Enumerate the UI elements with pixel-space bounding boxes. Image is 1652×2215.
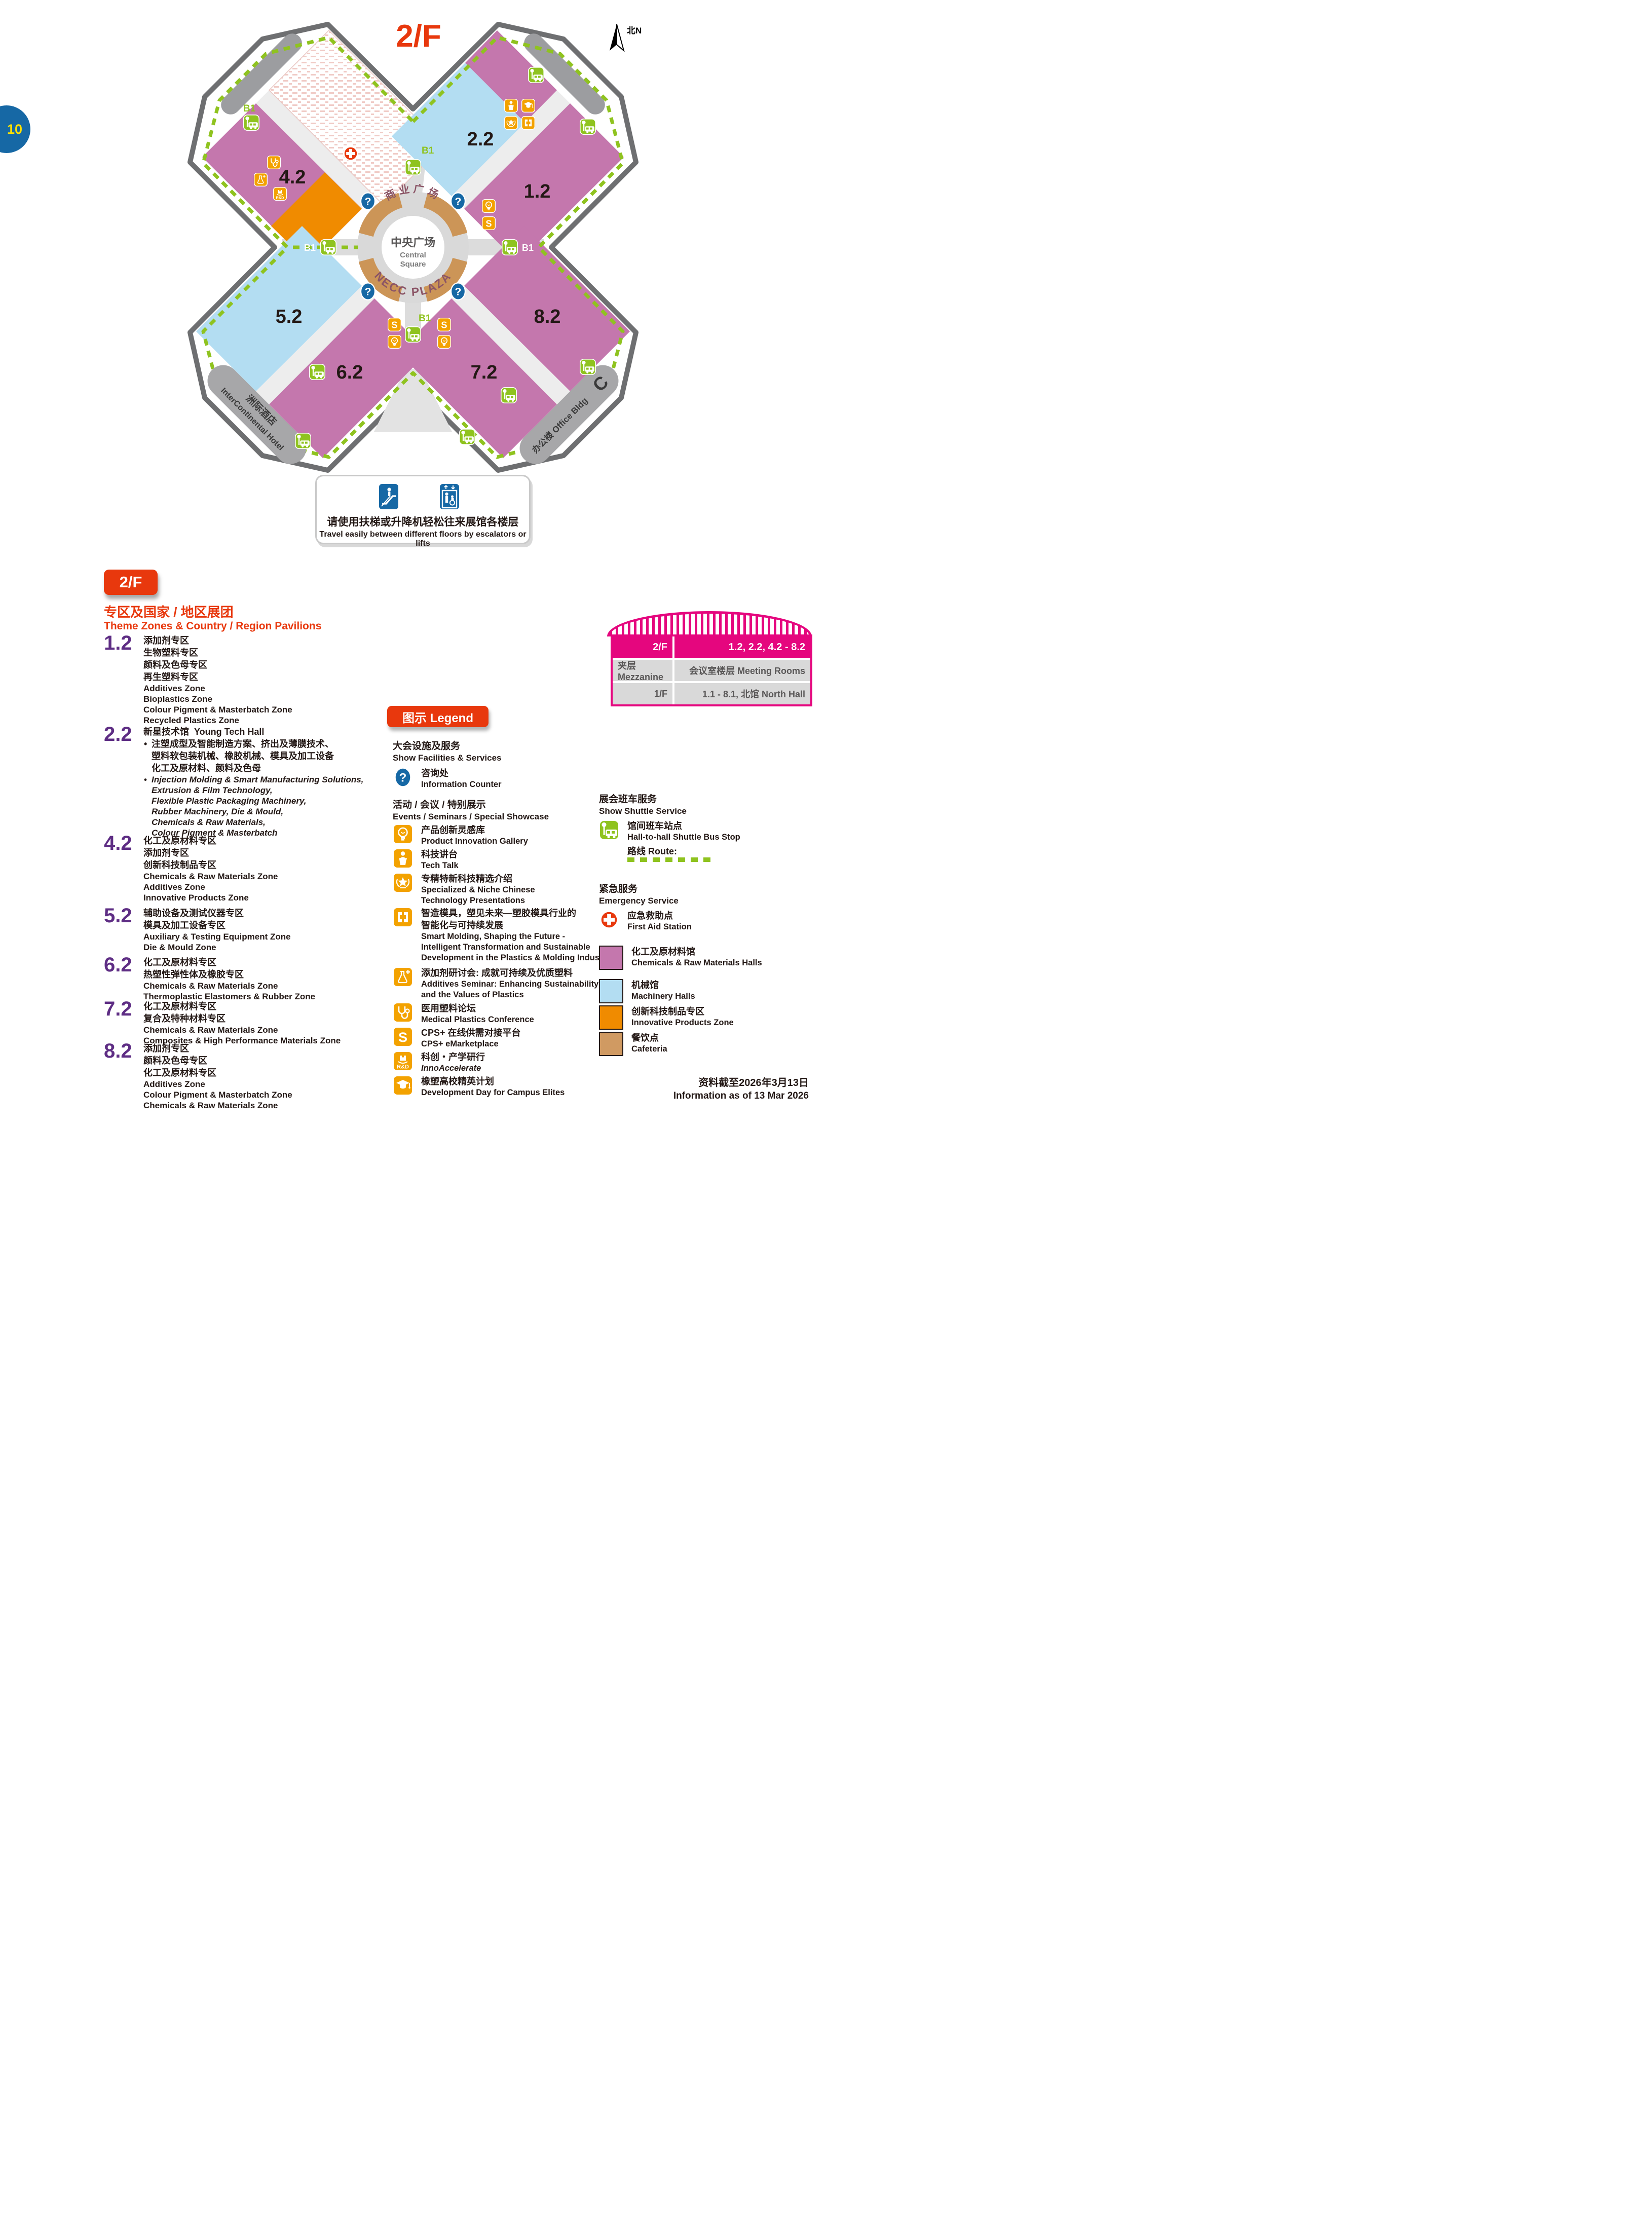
legend-zh: 餐饮点 [631, 1032, 667, 1044]
zone-row-1-2: 1.2 添加剂专区 生物塑料专区 颜料及色母专区 再生塑料专区 Additive… [104, 633, 418, 726]
bus-stop-icon [580, 119, 595, 134]
legend-zh: 咨询处 [421, 767, 502, 779]
legend-en: InnoAccelerate [421, 1063, 485, 1074]
table-row: 1/F 1.1 - 8.1, 北馆 North Hall [613, 683, 810, 704]
route-sample: 路线 Route: [627, 844, 740, 862]
legend-en: Chemicals & Raw Materials Halls [631, 958, 762, 968]
legend-item-cps: CPS+ 在线供需对接平台 CPS+ eMarketplace [393, 1027, 521, 1049]
emergency-header: 紧急服务 Emergency Service [599, 883, 679, 907]
info-counter-icon [361, 193, 375, 209]
zone-title-en: Young Tech Hall [194, 727, 264, 737]
legend-zh: 创新科技制品专区 [631, 1005, 734, 1018]
legend-en: Hall-to-hall Shuttle Bus Stop [627, 832, 740, 843]
legend-zh: 科技讲台 [421, 848, 459, 860]
events-header-zh: 活动 / 会议 / 特别展示 [393, 799, 549, 811]
zone-line: Colour Pigment & Masterbatch Zone [143, 1090, 292, 1100]
zone-line: 辅助设备及测试仪器专区 [143, 907, 291, 919]
theme-title-zh: 专区及国家 / 地区展团 [104, 602, 234, 621]
star-icon [505, 117, 518, 130]
lift-icon [439, 483, 460, 510]
hall-label-2-2: 2.2 [467, 129, 494, 150]
route-label: 路线 Route: [627, 844, 735, 857]
zone-line: 化工及原材料专区 [143, 956, 315, 968]
legend-en: CPS+ eMarketplace [421, 1039, 521, 1049]
zone-number: 8.2 [104, 1041, 143, 1108]
bus-stop-icon [599, 820, 619, 840]
legend-zh: CPS+ 在线供需对接平台 [421, 1027, 521, 1039]
legend-item-additives-seminar: 添加剂研讨会: 成就可持续及优质塑料 Additives Seminar: En… [393, 967, 598, 1000]
zone-line: Bioplastics Zone [143, 694, 292, 704]
legend-en: Medical Plastics Conference [421, 1015, 534, 1025]
tech-talk-icon [393, 848, 413, 869]
info-box-en: Travel easily between different floors b… [317, 530, 529, 548]
zone-row-7-2: 7.2 化工及原材料专区 复合及特种材料专区 Chemicals & Raw M… [104, 999, 418, 1046]
zone-line: •Injection Molding & Smart Manufacturing… [143, 774, 363, 785]
legend-item-info-counter: 咨询处 Information Counter [393, 767, 502, 790]
bulb-icon [438, 335, 451, 349]
north-label: 北N [627, 26, 642, 35]
floor-stack-table: 2/F 1.2, 2.2, 4.2 - 8.2 夹层 Mezzanine 会议室… [611, 634, 812, 706]
legend-en: Information Counter [421, 779, 502, 790]
info-counter-icon [451, 193, 465, 209]
zone-line: 化工及原材料、颜料及色母 [143, 762, 363, 774]
legend-item-product-innovation: 产品创新灵感库 Product Innovation Gallery [393, 824, 528, 847]
zone-line: Additives Zone [143, 1079, 292, 1090]
zone-row-4-2: 4.2 化工及原材料专区 添加剂专区 创新科技制品专区 Chemicals & … [104, 834, 418, 903]
legend-en: Smart Molding, Shaping the Future - [421, 931, 610, 942]
legend-en: Tech Talk [421, 860, 459, 871]
b1-label: B1 [304, 243, 316, 253]
info-counter-icon [393, 767, 413, 787]
hall-label-5-2: 5.2 [276, 306, 303, 327]
zone-row-5-2: 5.2 辅助设备及测试仪器专区 模具及加工设备专区 Auxiliary & Te… [104, 906, 418, 953]
zone-line: 再生塑料专区 [143, 671, 292, 683]
bus-stop-icon [321, 240, 336, 255]
zone-line: Chemicals & Raw Materials Zone [143, 1100, 292, 1108]
hall-label-8-2: 8.2 [534, 306, 561, 327]
legend-zh: 智造模具，塑见未来—塑胶模具行业的 [421, 907, 610, 919]
color-swatch [599, 1032, 623, 1056]
legend-en: Technology Presentations [421, 895, 535, 906]
first-aid-icon [344, 147, 357, 160]
bus-stop-icon [310, 364, 325, 380]
table-row: 夹层 Mezzanine 会议室楼层 Meeting Rooms [613, 660, 810, 681]
zone-number: 1.2 [104, 633, 143, 726]
zone-line: 化工及原材料专区 [143, 835, 278, 847]
emergency-header-zh: 紧急服务 [599, 883, 679, 895]
legend-badge-label: 图示 Legend [402, 708, 473, 726]
mold-icon [393, 907, 413, 927]
zone-line: Recycled Plastics Zone [143, 715, 292, 726]
page: ? [0, 0, 826, 1108]
legend-zh: 医用塑料论坛 [421, 1002, 534, 1015]
escalator-lift-info-box: 请使用扶梯或升降机轻松往来展馆各楼层 Travel easily between… [315, 475, 531, 544]
zone-line: 颜料及色母专区 [143, 1055, 292, 1067]
date-note: 资料截至2026年3月13日 Information as of 13 Mar … [608, 1076, 809, 1102]
b1-label: B1 [419, 313, 431, 324]
stethoscope-icon [393, 1002, 413, 1023]
legend-en: Development in the Plastics & Molding In… [421, 953, 610, 963]
date-zh: 资料截至2026年3月13日 [608, 1076, 809, 1090]
flask-icon [393, 967, 413, 987]
page-number: 10 [7, 122, 22, 137]
legend-item-campus-elites: 橡塑高校精英计划 Development Day for Campus Elit… [393, 1075, 565, 1098]
building-cross-section-roof [607, 611, 812, 636]
legend-item-specialized: 专精特新科技精选介绍 Specialized & Niche Chinese T… [393, 873, 535, 906]
zone-title-zh: 新星技术馆 [143, 727, 189, 737]
floor-badge-label: 2/F [120, 573, 142, 591]
legend-en: and the Values of Plastics [421, 990, 598, 1000]
first-aid-icon [599, 910, 619, 930]
zone-line: Chemicals & Raw Materials, [143, 817, 363, 828]
zone-line: Chemicals & Raw Materials Zone [143, 981, 315, 991]
legend-en: First Aid Station [627, 922, 692, 932]
events-header: 活动 / 会议 / 特别展示 Events / Seminars / Speci… [393, 799, 549, 822]
legend-en: Machinery Halls [631, 991, 695, 1002]
hall-type-cafeteria: 餐饮点 Cafeteria [599, 1032, 667, 1056]
zone-line: 化工及原材料专区 [143, 1067, 292, 1079]
floor-plan-map: ? [0, 0, 826, 555]
route-dash-line [627, 857, 716, 862]
legend-zh: 机械馆 [631, 979, 695, 991]
central-square-en1: Central [400, 251, 426, 259]
legend-zh: 产品创新灵感库 [421, 824, 528, 836]
bus-stop-icon [501, 388, 516, 403]
b1-label: B1 [422, 145, 434, 156]
rnd-icon [393, 1051, 413, 1071]
table-row: 2/F 1.2, 2.2, 4.2 - 8.2 [613, 636, 810, 658]
cps-icon [393, 1027, 413, 1047]
north-arrow-icon: 北N [610, 24, 642, 51]
content-cell: 1.1 - 8.1, 北馆 North Hall [674, 683, 810, 704]
color-swatch [599, 979, 623, 1003]
content-cell: 会议室楼层 Meeting Rooms [674, 660, 810, 681]
zone-row-6-2: 6.2 化工及原材料专区 热塑性弹性体及橡胶专区 Chemicals & Raw… [104, 955, 418, 1002]
escalator-icon [379, 483, 399, 510]
zone-number: 2.2 [104, 725, 143, 838]
hall-label-1-2: 1.2 [524, 181, 551, 202]
zone-number: 7.2 [104, 999, 143, 1046]
cps-icon [438, 318, 451, 331]
zone-line: Additives Zone [143, 683, 292, 694]
legend-en: Cafeteria [631, 1044, 667, 1055]
info-counter-icon [451, 283, 465, 299]
legend-en: Additives Seminar: Enhancing Sustainabil… [421, 979, 598, 990]
cps-icon [388, 318, 401, 331]
bulb-icon [393, 824, 413, 844]
zone-line: 颜料及色母专区 [143, 659, 292, 671]
star-icon [393, 873, 413, 893]
legend-zh: 科创・产学研行 [421, 1051, 485, 1063]
hall-label-7-2: 7.2 [471, 362, 498, 383]
bus-stop-icon [405, 160, 421, 175]
hall-type-innovative: 创新科技制品专区 Innovative Products Zone [599, 1005, 734, 1030]
floor-cell: 2/F [613, 636, 672, 658]
zone-line: Flexible Plastic Packaging Machinery, [143, 796, 363, 806]
zone-line: Chemicals & Raw Materials Zone [143, 871, 278, 882]
bus-stop-icon [502, 240, 517, 255]
facilities-header-en: Show Facilities & Services [393, 753, 501, 764]
tech-talk-icon [505, 99, 518, 112]
legend-item-first-aid: 应急救助点 First Aid Station [599, 910, 692, 932]
color-swatch [599, 1005, 623, 1030]
events-header-en: Events / Seminars / Special Showcase [393, 811, 549, 822]
zone-line: 添加剂专区 [143, 1042, 292, 1055]
bus-stop-icon [580, 359, 595, 374]
zone-line: Innovative Products Zone [143, 892, 278, 903]
legend-zh: 智能化与可持续发展 [421, 919, 610, 931]
mold-icon [522, 117, 535, 130]
legend-zh: 化工及原材料馆 [631, 946, 762, 958]
emergency-header-en: Emergency Service [599, 895, 679, 907]
info-box-zh: 请使用扶梯或升降机轻松往来展馆各楼层 [317, 514, 529, 529]
grad-cap-icon [522, 99, 535, 112]
central-square-zh: 中央广场 [391, 236, 435, 249]
color-swatch [599, 946, 623, 970]
legend-zh: 应急救助点 [627, 910, 692, 922]
info-counter-icon [361, 283, 375, 299]
theme-title-en: Theme Zones & Country / Region Pavilions [104, 620, 321, 632]
shuttle-header: 展会班车服务 Show Shuttle Service [599, 793, 687, 817]
zone-line: Extrusion & Film Technology, [143, 785, 363, 796]
legend-zh: 馆间班车站点 [627, 820, 740, 832]
legend-zh: 橡塑高校精英计划 [421, 1075, 565, 1087]
floor-cell: 夹层 Mezzanine [613, 660, 672, 681]
floor-cell: 1/F [613, 683, 672, 704]
zone-line: 添加剂专区 [143, 847, 278, 859]
zone-number: 4.2 [104, 834, 143, 903]
zone-line: Chemicals & Raw Materials Zone [143, 1025, 341, 1035]
zone-row-2-2: 2.2 新星技术馆 Young Tech Hall •注塑成型及智能制造方案、挤… [104, 725, 418, 838]
hall-type-chemicals: 化工及原材料馆 Chemicals & Raw Materials Halls [599, 946, 762, 970]
b1-label: B1 [522, 243, 534, 253]
bulb-icon [482, 200, 496, 213]
bus-stop-icon [529, 67, 544, 83]
floor-badge: 2/F [104, 570, 158, 595]
b1-label: B1 [243, 103, 256, 114]
map-floor-title: 2/F [396, 19, 441, 54]
zone-line: 热塑性弹性体及橡胶专区 [143, 968, 315, 981]
shuttle-header-zh: 展会班车服务 [599, 793, 687, 806]
content-cell: 1.2, 2.2, 4.2 - 8.2 [674, 636, 810, 658]
legend-en: Innovative Products Zone [631, 1018, 734, 1028]
zone-line: 塑料软包装机械、橡胶机械、模具及加工设备 [143, 750, 363, 762]
bulb-icon [388, 335, 401, 349]
zone-line: 化工及原材料专区 [143, 1000, 341, 1012]
zone-row-8-2: 8.2 添加剂专区 颜料及色母专区 化工及原材料专区 Additives Zon… [104, 1041, 418, 1108]
legend-item-tech-talk: 科技讲台 Tech Talk [393, 848, 459, 871]
zone-line: Additives Zone [143, 882, 278, 892]
legend-en: Development Day for Campus Elites [421, 1087, 565, 1098]
cps-icon [482, 217, 496, 230]
facilities-header: 大会设施及服务 Show Facilities & Services [393, 740, 501, 764]
grad-cap-icon [393, 1075, 413, 1096]
facilities-header-zh: 大会设施及服务 [393, 740, 501, 753]
zone-line: 生物塑料专区 [143, 647, 292, 659]
hall-label-6-2: 6.2 [336, 362, 363, 383]
shuttle-header-en: Show Shuttle Service [599, 806, 687, 817]
zone-number: 5.2 [104, 906, 143, 953]
legend-en: Intelligent Transformation and Sustainab… [421, 942, 610, 953]
zone-line: 复合及特种材料专区 [143, 1012, 341, 1025]
central-square-en2: Square [400, 260, 426, 269]
bus-stop-icon [460, 429, 475, 444]
zone-line: 创新科技制品专区 [143, 859, 278, 871]
zone-line: •注塑成型及智能制造方案、挤出及薄膜技术、 [143, 738, 363, 750]
legend-zh: 添加剂研讨会: 成就可持续及优质塑料 [421, 967, 598, 979]
zone-line: Auxiliary & Testing Equipment Zone [143, 931, 291, 942]
legend-item-medical-plastics: 医用塑料论坛 Medical Plastics Conference [393, 1002, 534, 1025]
stethoscope-icon [268, 156, 281, 169]
rnd-icon [274, 187, 287, 201]
bus-stop-icon [405, 327, 421, 342]
legend-item-innoaccelerate: 科创・产学研行 InnoAccelerate [393, 1051, 485, 1074]
zone-line: Die & Mould Zone [143, 942, 291, 953]
zone-line: 模具及加工设备专区 [143, 919, 291, 931]
bus-stop-icon [295, 433, 311, 448]
zone-line: Colour Pigment & Masterbatch Zone [143, 704, 292, 715]
legend-en: Specialized & Niche Chinese [421, 885, 535, 895]
legend-item-smart-molding: 智造模具，塑见未来—塑胶模具行业的 智能化与可持续发展 Smart Moldin… [393, 907, 610, 963]
zone-number: 6.2 [104, 955, 143, 1002]
zone-line: Rubber Machinery, Die & Mould, [143, 806, 363, 817]
legend-zh: 专精特新科技精选介绍 [421, 873, 535, 885]
flask-icon [254, 173, 268, 186]
date-en: Information as of 13 Mar 2026 [608, 1090, 809, 1102]
zone-line: 添加剂专区 [143, 634, 292, 647]
hall-label-4-2: 4.2 [279, 167, 306, 188]
legend-en: Product Innovation Gallery [421, 836, 528, 847]
hall-type-machinery: 机械馆 Machinery Halls [599, 979, 695, 1003]
legend-item-shuttle-stop: 馆间班车站点 Hall-to-hall Shuttle Bus Stop 路线 … [599, 820, 740, 862]
legend-badge: 图示 Legend [387, 706, 489, 727]
bus-stop-icon [244, 115, 259, 130]
